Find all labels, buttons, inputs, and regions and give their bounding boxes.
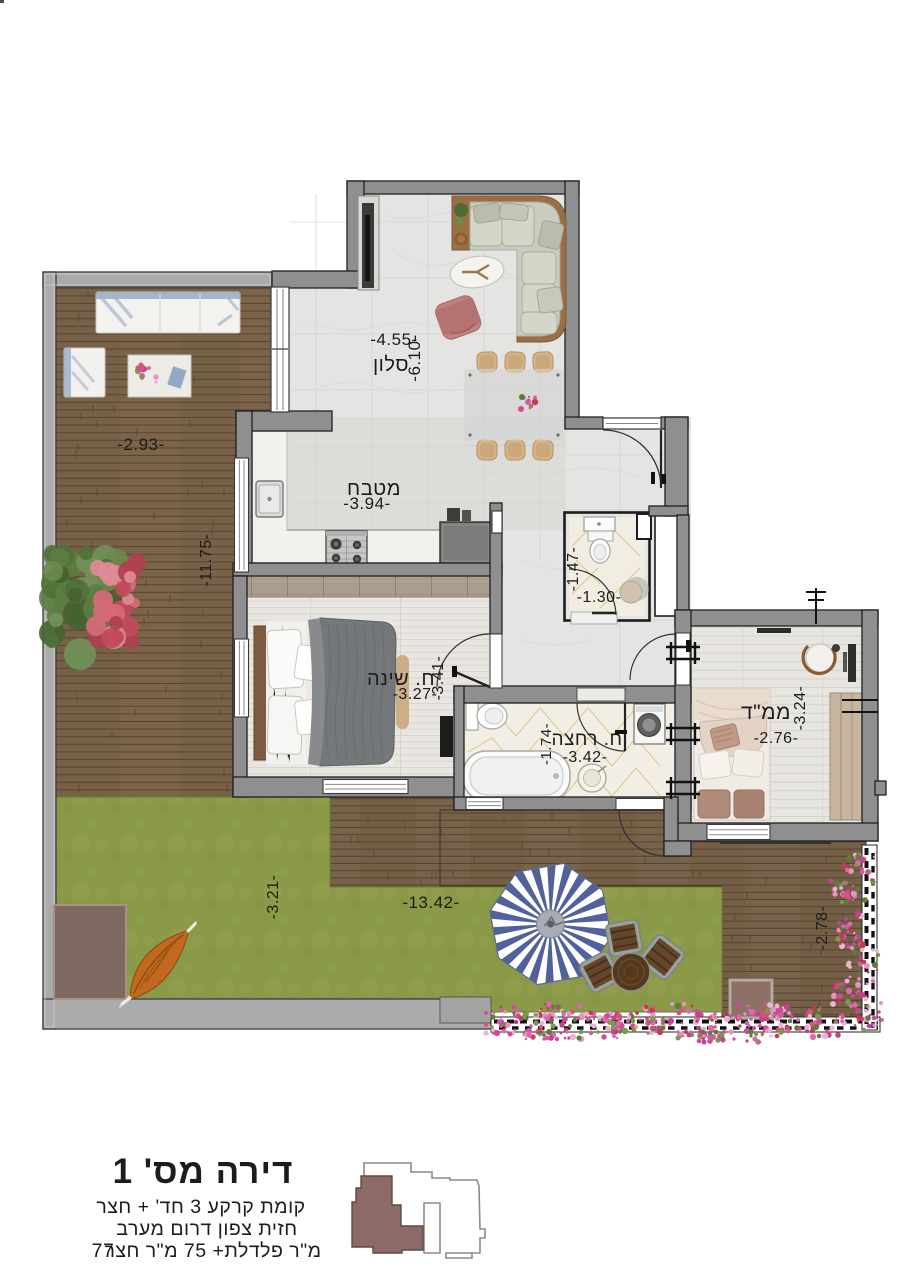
svg-text:-11.75-: -11.75- xyxy=(198,533,215,586)
svg-text:מ"ר פלדלת+ 75 מ"ר חצר: מ"ר פלדלת+ 75 מ"ר חצר xyxy=(104,1240,321,1262)
svg-text:קומת קרקע 3 חד' + חצר: קומת קרקע 3 חד' + חצר xyxy=(96,1196,305,1218)
svg-text:-13.42-: -13.42- xyxy=(402,893,459,912)
svg-text:-1.30-: -1.30- xyxy=(577,589,622,606)
svg-text:-3.24-: -3.24- xyxy=(792,686,809,731)
svg-text:-2.78-: -2.78- xyxy=(814,906,831,951)
svg-text:-2.76-: -2.76- xyxy=(754,730,799,747)
svg-text:-1.47-: -1.47- xyxy=(565,547,582,592)
svg-text:דירה מס' 1: דירה מס' 1 xyxy=(113,1152,294,1191)
svg-text:חזית צפון דרום מערב: חזית צפון דרום מערב xyxy=(116,1218,297,1240)
svg-text:-3.41-: -3.41- xyxy=(430,656,447,701)
svg-text:-3.94-: -3.94- xyxy=(343,494,390,513)
svg-text:-2.93-: -2.93- xyxy=(117,435,164,454)
svg-text:ח. רחצה: ח. רחצה xyxy=(551,729,622,750)
svg-text:ממ"ד: ממ"ד xyxy=(741,701,791,724)
svg-text:סלון: סלון xyxy=(373,354,409,376)
svg-text:-3.42-: -3.42- xyxy=(563,749,608,766)
svg-text:-3.21-: -3.21- xyxy=(265,875,282,920)
svg-text:77: 77 xyxy=(92,1240,115,1262)
